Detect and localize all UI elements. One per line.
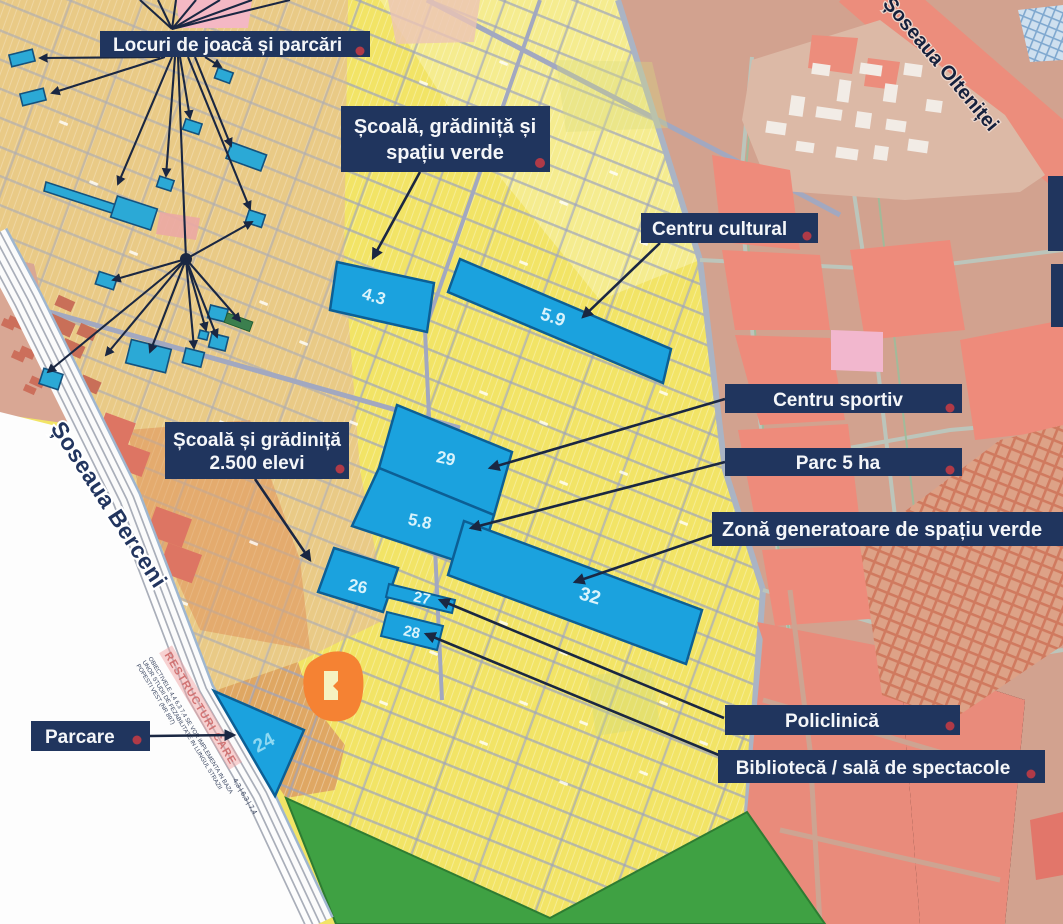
svg-text:Policlinică: Policlinică	[785, 711, 879, 732]
svg-text:Parc 5 ha: Parc 5 ha	[796, 453, 881, 474]
svg-text:Școală, grădiniță și: Școală, grădiniță și	[354, 116, 536, 138]
svg-text:Școală și grădiniță: Școală și grădiniță	[173, 430, 341, 451]
svg-text:2.500 elevi: 2.500 elevi	[209, 453, 304, 474]
svg-text:Zonă generatoare de spațiu ver: Zonă generatoare de spațiu verde	[722, 519, 1042, 541]
svg-text:Centru sportiv: Centru sportiv	[773, 390, 903, 411]
svg-text:Centru cultural: Centru cultural	[652, 219, 787, 240]
svg-text:28: 28	[402, 622, 422, 642]
svg-text:Parcare: Parcare	[45, 727, 115, 748]
svg-text:27: 27	[412, 588, 432, 608]
svg-text:spațiu verde: spațiu verde	[386, 142, 504, 164]
svg-text:Bibliotecă / sală de spectacol: Bibliotecă / sală de spectacole	[736, 758, 1011, 779]
svg-text:26: 26	[347, 575, 369, 598]
svg-text:29: 29	[435, 447, 457, 470]
svg-text:Locuri de joacă și parcări: Locuri de joacă și parcări	[113, 35, 342, 56]
